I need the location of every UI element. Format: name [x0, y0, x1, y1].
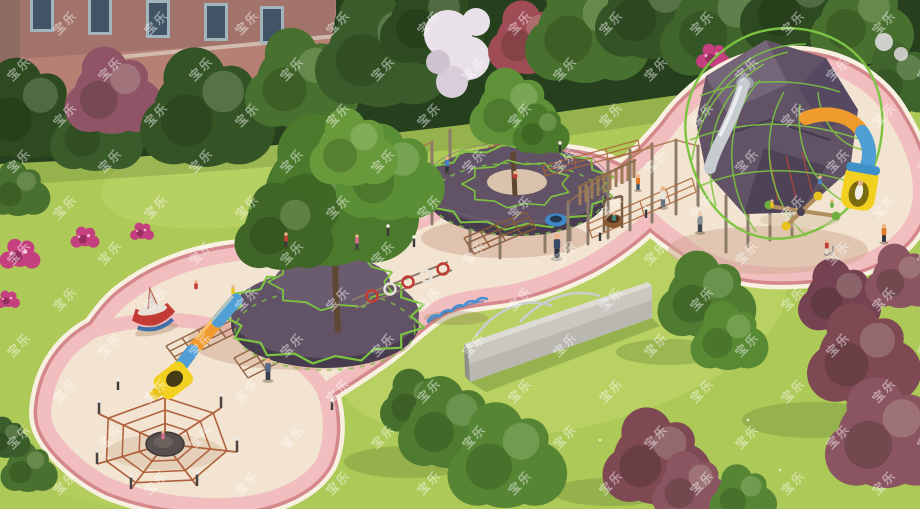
person [231, 285, 235, 294]
playground-rendering: 宝乐宝乐宝乐宝乐宝乐宝乐宝乐宝乐宝乐宝乐宝乐宝乐宝乐宝乐宝乐宝乐宝乐宝乐宝乐宝乐… [0, 0, 920, 509]
person [194, 280, 198, 289]
person [161, 430, 165, 439]
scene-canvas [0, 0, 920, 509]
person [830, 199, 834, 207]
person [612, 212, 616, 220]
spinner-disc [545, 214, 567, 227]
person [770, 199, 774, 207]
